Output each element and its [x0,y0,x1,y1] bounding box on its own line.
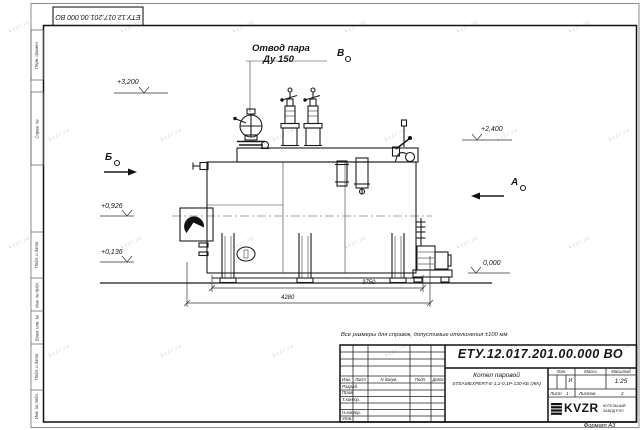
margin-label-podp-data-1: Подп. и дата [31,232,43,278]
water-gauge [335,158,370,194]
title-doc-number: ЕТУ.12.017.201.00.000 ВО [445,347,636,361]
sheet-label: Лист [550,391,562,396]
dimension-3750: 3750 [362,280,375,286]
section-label-a: А [511,177,518,188]
sheets-label: Листов [579,391,595,396]
company-sub-line2: ЗАВОД РЭП [603,409,624,413]
company-logo-text: KVZR [564,401,599,415]
lit-header: Лит. [548,369,575,374]
elevation-marks [100,87,512,273]
scale-value: 1:25 [606,378,636,385]
elevation-0136: +0,136 [101,249,123,256]
product-name-line1: Котел паровой [445,372,548,379]
elevation-0926: +0,926 [101,203,123,210]
lit-value: И [566,378,575,384]
elevation-2400: +2,400 [481,126,503,133]
row-label-tkontr: Т.контр. [342,397,360,402]
sheet-value: 1 [566,391,569,396]
logo-icon [551,403,562,415]
steam-outlet-size: Ду 150 [263,54,294,65]
col-header-data: Дата [431,377,445,382]
steam-outlet-valve [233,61,327,145]
format-label: Формат А3 [572,423,627,429]
frame-border [31,4,639,428]
margin-label-vzam-inv: Взам. инв. № [31,311,43,344]
row-label-nkontr: Н.контр. [342,410,361,415]
scale-header: Масштаб [606,369,636,374]
row-label-prov: Пров. [342,390,354,395]
company-sub-line1: КОТЕЛЬНЫЙ [603,404,626,408]
col-header-list: Лист [353,377,368,382]
row-label-utv: Утв. [342,416,352,421]
margin-label-perv-primen: Перв. примен. [31,30,43,80]
top-stamp-doc-number: ЕТУ.12.017.201.00.000 ВО [53,7,143,25]
mass-header: Масса [575,369,606,374]
margin-label-podp-data-2: Подп. и дата [31,344,43,390]
steam-outlet-label: Отвод пара [252,43,310,54]
margin-label-sprav-no: Справ. № [31,92,43,165]
view-label-v: В [337,48,344,59]
section-label-b: Б [105,152,112,163]
lever-fitting [393,120,415,162]
col-header-podp: Подп. [410,377,431,382]
margin-label-inv-dubl: Инв. № дубл. [31,278,43,311]
burner-box [180,208,213,241]
drawing-sheet: kvzr.rukvzr.rukvzr.rukvzr.rukvzr.rukvzr.… [0,0,644,430]
safety-valve-1 [280,88,299,146]
elevation-3200: +3,200 [117,79,139,86]
drawing-geometry [0,0,644,430]
sheets-value: 2 [621,391,624,396]
reference-note: Все размеры для справок, допустимые откл… [341,332,507,338]
safety-valve-2 [303,88,322,146]
row-label-razrab: Разраб. [342,384,358,389]
product-name-line2: STEAMEXPERT-Е-1,2-0,1Р-130-КБ (ЖК) [445,382,548,387]
pump-unit [413,218,452,282]
elevation-0000: 0,000 [483,260,501,267]
margin-label-inv-podl: Инв. № подл. [31,390,43,422]
dimension-lines [184,256,433,307]
col-header-izm: Изм. [340,377,353,382]
dimension-4280: 4280 [281,295,294,301]
col-header-ndoc: N докум. [368,377,410,382]
